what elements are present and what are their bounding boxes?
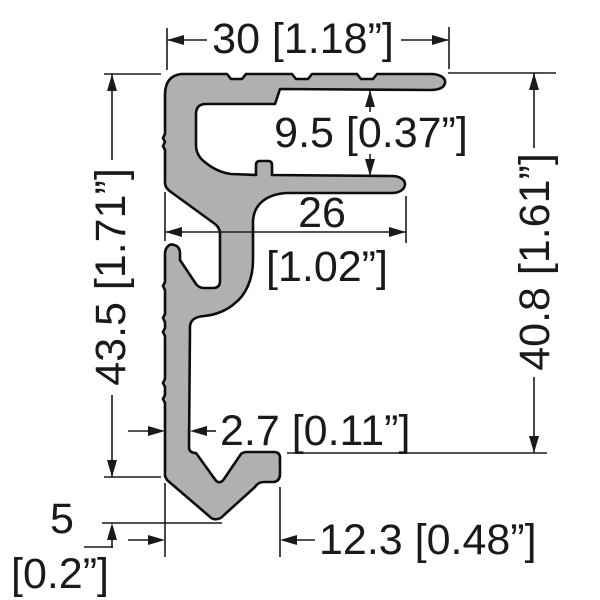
dim-flange-gap: 9.5 [0.37”]: [274, 90, 468, 176]
dim-left-height: 43.5 [1.71”]: [87, 74, 161, 477]
arrowhead-left: [167, 35, 184, 45]
dim-mid-width-label-mm: 26: [298, 189, 346, 237]
arrowhead-down: [107, 460, 117, 477]
arrowhead-down: [365, 159, 375, 176]
arrowhead-right: [148, 426, 165, 436]
arrowhead-right: [148, 535, 165, 545]
arrowhead-right: [432, 35, 449, 45]
arrowhead-left: [190, 426, 207, 436]
dim-foot-width-label: 12.3 [0.48”]: [319, 516, 537, 564]
technical-drawing-page: 30 [1.18”] 9.5 [0.37”] 26 [1.02”] 43.5 […: [0, 0, 600, 600]
arrowhead-up: [365, 90, 375, 107]
dim-left-height-label: 43.5 [1.71”]: [87, 168, 135, 386]
arrowhead-left: [165, 227, 182, 237]
dim-top-width: 30 [1.18”]: [167, 15, 449, 70]
arrowhead-right: [389, 227, 406, 237]
dim-top-width-label: 30 [1.18”]: [212, 15, 394, 63]
dim-stem-thickness-label: 2.7 [0.11”]: [220, 407, 410, 455]
dim-mid-width-label-in: [1.02”]: [266, 243, 388, 291]
arrowhead-up: [107, 74, 117, 91]
arrowhead-up: [107, 523, 117, 540]
drawing-canvas: 30 [1.18”] 9.5 [0.37”] 26 [1.02”] 43.5 […: [0, 0, 600, 600]
dim-tip-offset-label-in: [0.2”]: [11, 550, 109, 598]
dim-tip-offset-label-mm: 5: [50, 495, 74, 543]
dim-flange-gap-label: 9.5 [0.37”]: [274, 109, 468, 157]
arrowhead-up: [529, 73, 539, 90]
arrowhead-left: [280, 535, 297, 545]
dim-right-height-label: 40.8 [1.61”]: [511, 153, 559, 371]
arrowhead-down: [529, 436, 539, 453]
dim-tip-offset: 5 [0.2”]: [11, 495, 222, 598]
